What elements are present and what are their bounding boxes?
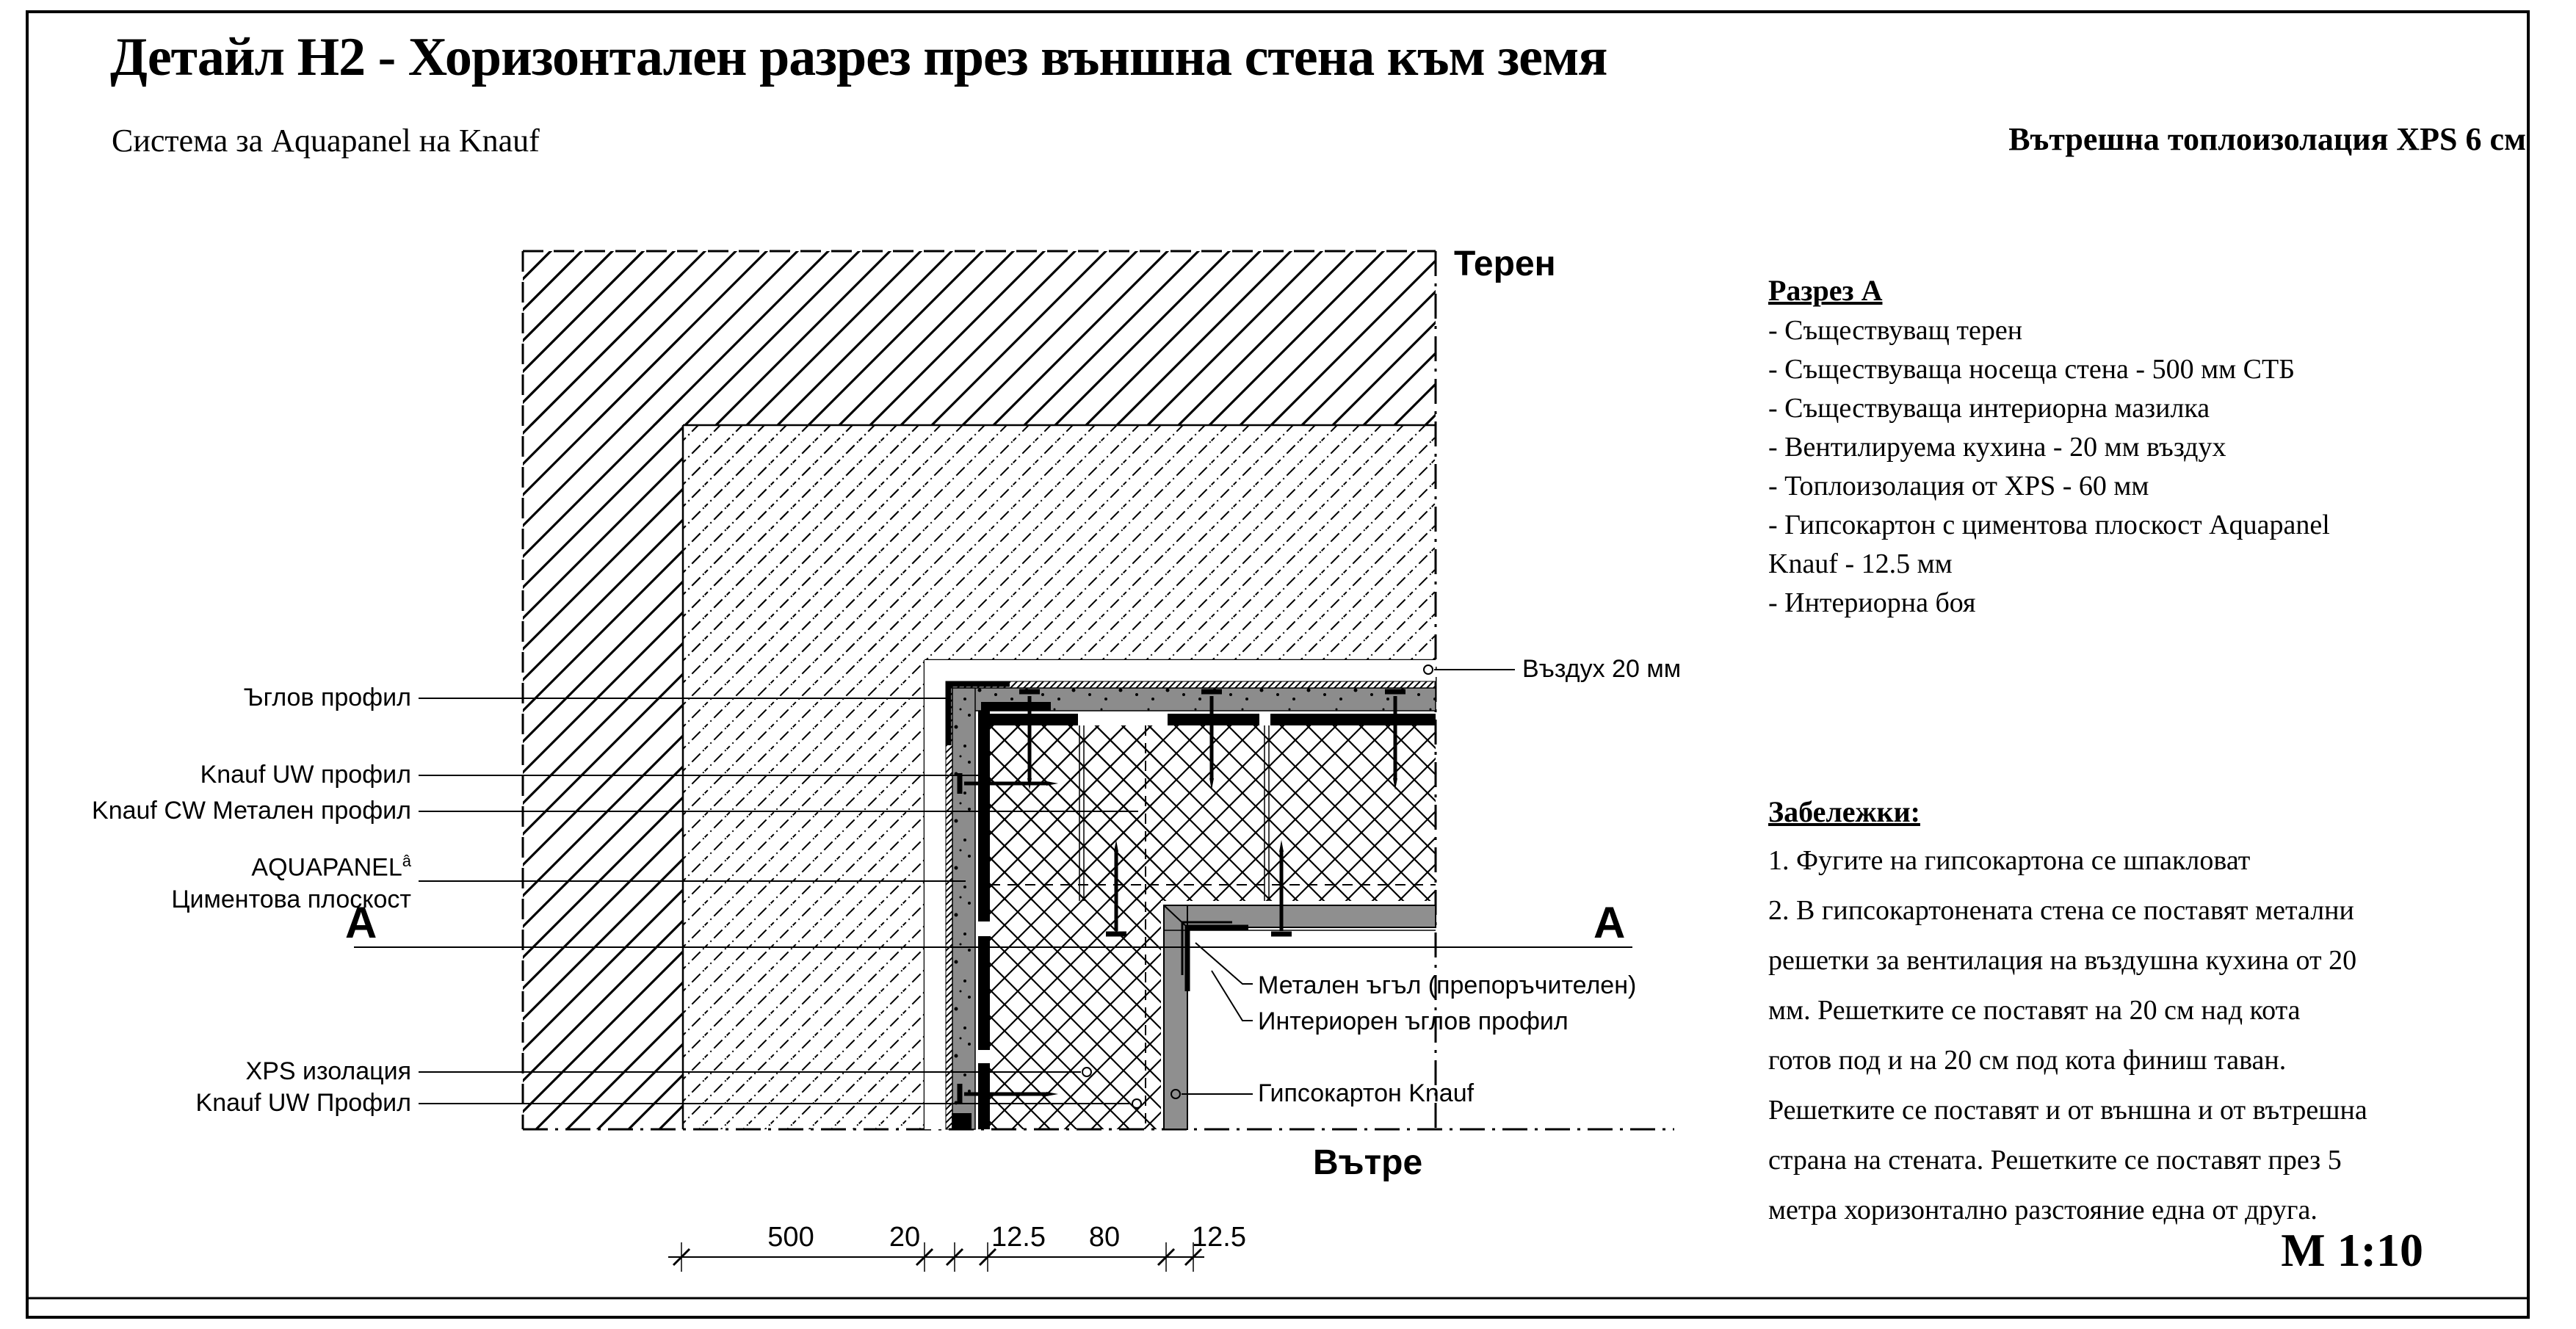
dim-air-20: 20 (853, 1222, 956, 1253)
callout-knauf-uw-profile: Knauf UW профил (37, 761, 411, 789)
note-line: страна на стената. Решетките се поставят… (1768, 1144, 2342, 1176)
section-marker-a-left: A (345, 897, 377, 948)
section-a-heading: Разрез А (1768, 273, 1882, 308)
callout-corner-profile: Ъглов профил (37, 684, 411, 712)
dim-wall-500: 500 (739, 1222, 842, 1253)
callout-gypsum-board: Гипсокартон Knauf (1258, 1079, 1474, 1108)
terrain-label: Терен (1454, 244, 1556, 284)
callout-xps-insulation: XPS изолация (37, 1057, 411, 1086)
callout-knauf-cw-profile: Knauf CW Метален профил (37, 797, 411, 825)
note-line: Решетките се поставят и от външна и от в… (1768, 1094, 2367, 1126)
detail-drawing-canvas (0, 0, 2576, 1329)
section-a-item: - Топлоизолация от XPS - 60 мм (1768, 470, 2149, 502)
section-a-item: - Вентилируема кухина - 20 мм въздух (1768, 431, 2226, 463)
note-line: мм. Решетките се поставят на 20 см над к… (1768, 994, 2301, 1026)
system-variant-label: Вътрешна топлоизолация XPS 6 см (1762, 120, 2526, 158)
section-a-item: - Съществуваща интериорна мазилка (1768, 392, 2210, 424)
page-subtitle: Система за Aquapanel на Knauf (112, 122, 540, 159)
note-line: 1. Фугите на гипсокартона се шпакловат (1768, 844, 2250, 877)
inside-label: Вътре (1313, 1142, 1422, 1183)
callout-knauf-uw-runner: Knauf UW Профил (37, 1089, 411, 1118)
section-a-item: Knauf - 12.5 мм (1768, 548, 1953, 580)
callout-air-gap: Въздух 20 мм (1522, 655, 1681, 684)
callout-metal-corner: Метален ъгъл (препоръчителен) (1258, 971, 1636, 1000)
section-a-item: - Интериорна боя (1768, 587, 1976, 619)
note-line: готов под и на 20 см под кота финиш тава… (1768, 1044, 2286, 1076)
section-a-item: - Съществуващ терен (1768, 314, 2022, 347)
scale-label: М 1:10 (2130, 1223, 2423, 1278)
callout-aquapanel-brand: AQUAPANELâ (37, 852, 411, 882)
dim-gypsum-12-5: 12.5 (1168, 1222, 1270, 1253)
note-line: метра хоризонтално разстояние една от др… (1768, 1194, 2318, 1226)
section-a-item: - Съществуваща носеща стена - 500 мм СТБ (1768, 353, 2295, 385)
notes-heading: Забележки: (1768, 794, 1920, 829)
drawing-sheet: Детайл Н2 - Хоризонтален разрез през вън… (0, 0, 2576, 1329)
note-line: 2. В гипсокартонената стена се поставят … (1768, 894, 2354, 927)
section-marker-a-right: A (1593, 897, 1625, 948)
callout-interior-corner: Интериорен ъглов профил (1258, 1007, 1569, 1036)
note-line: решетки за вентилация на въздушна кухина… (1768, 944, 2356, 977)
dim-cavity-80: 80 (1053, 1222, 1156, 1253)
section-a-item: - Гипсокартон с циментова плоскост Aquap… (1768, 509, 2330, 541)
page-title: Детайл Н2 - Хоризонтален разрез през вън… (110, 26, 1607, 89)
registered-mark: â (402, 852, 411, 870)
